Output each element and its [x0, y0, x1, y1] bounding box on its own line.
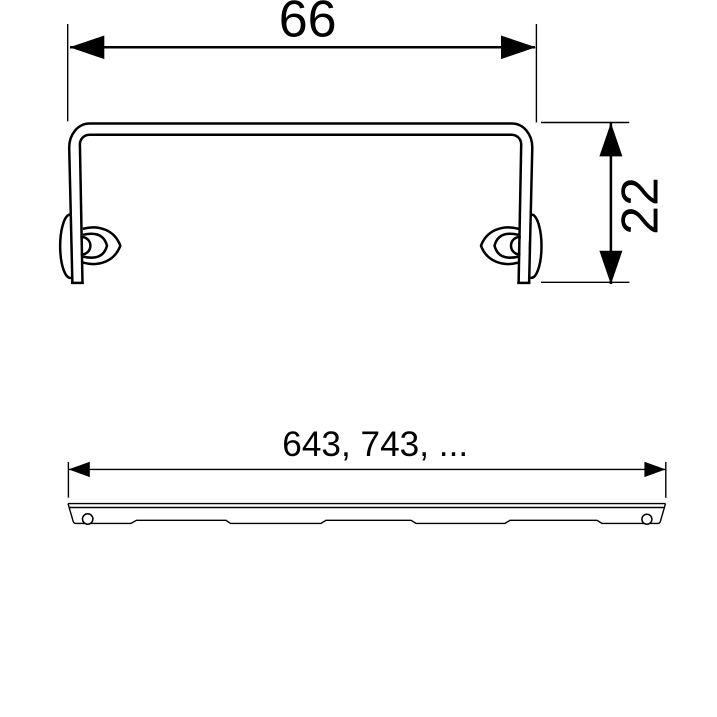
- svg-text:66: 66: [279, 0, 337, 49]
- svg-text:22: 22: [612, 177, 670, 235]
- svg-text:643, 743, ...: 643, 743, ...: [282, 425, 468, 464]
